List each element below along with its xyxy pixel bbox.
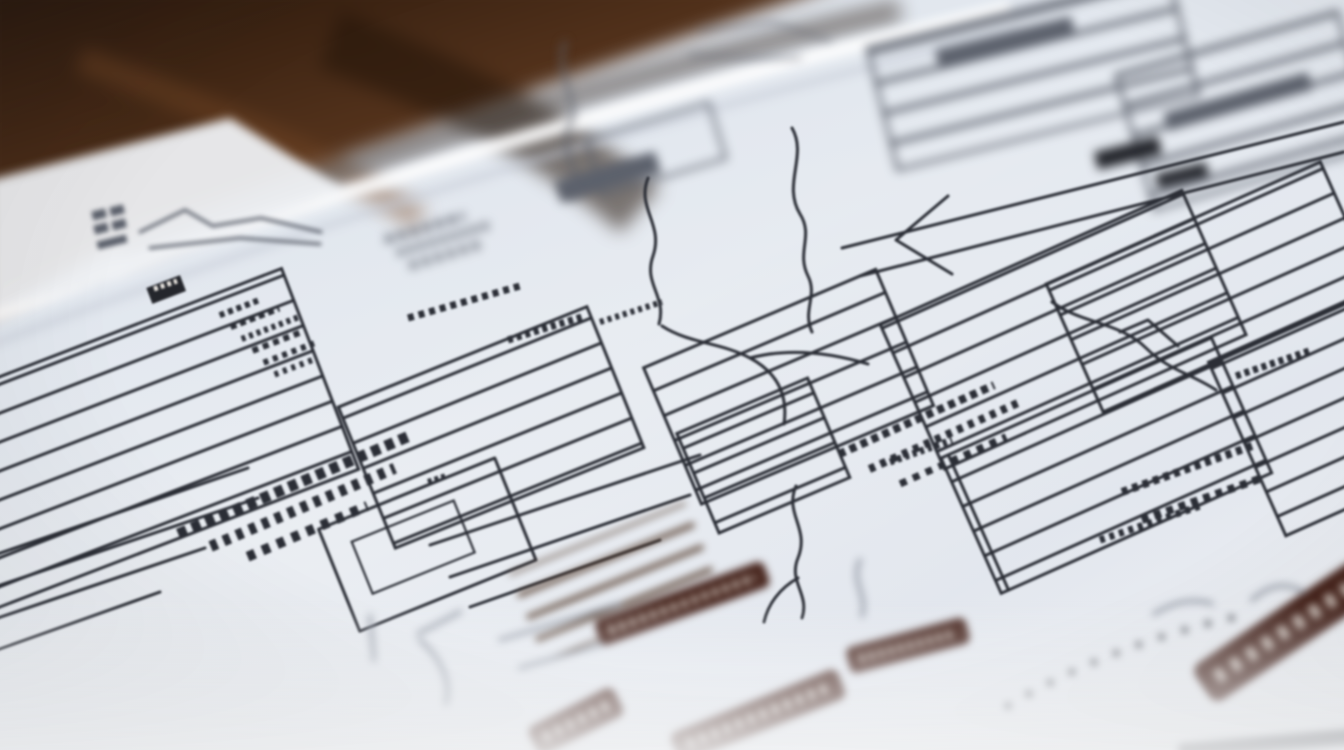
photo-of-diagram-papers xyxy=(0,0,1344,750)
vignette xyxy=(0,0,1344,750)
photo-canvas xyxy=(0,0,1344,750)
